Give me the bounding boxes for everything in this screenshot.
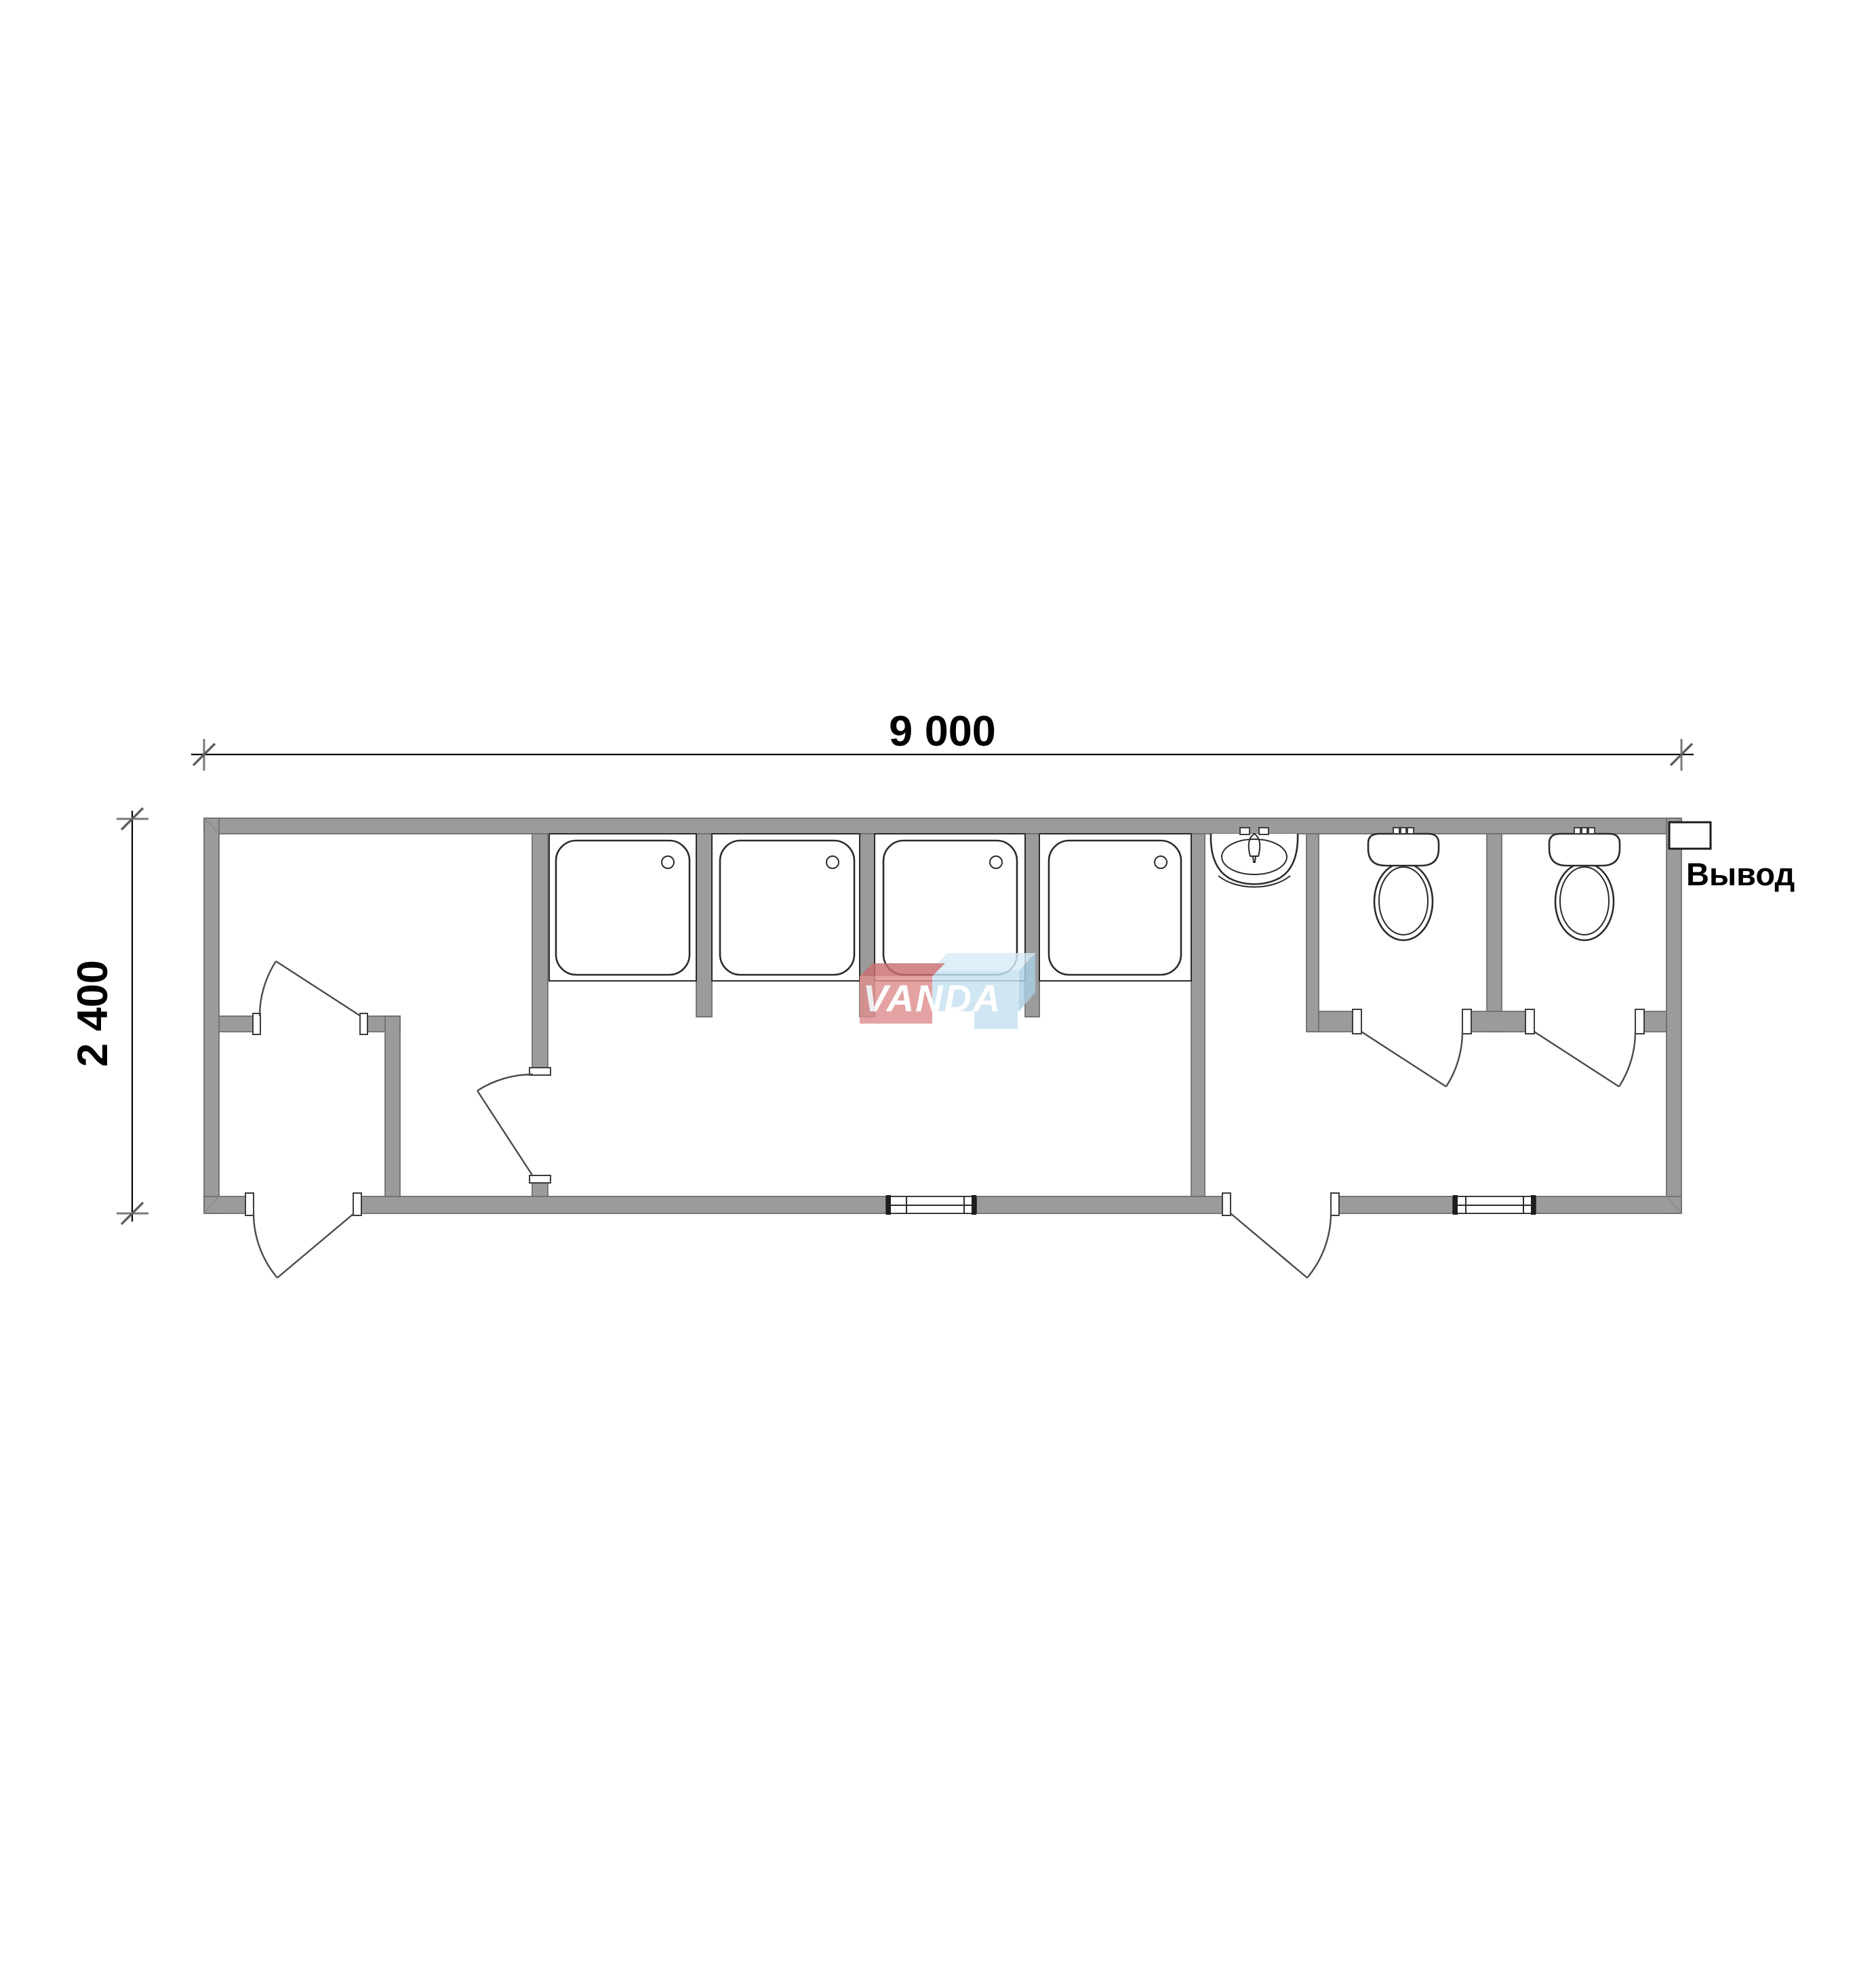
door-jamb <box>253 1013 260 1034</box>
toilet-1 <box>1368 828 1439 940</box>
shower-tray-4 <box>1049 841 1181 975</box>
door-jamb <box>530 1175 551 1183</box>
door-jamb <box>245 1193 254 1215</box>
wall-stall-partition <box>1487 834 1502 1032</box>
wall-shower-divider-upper <box>532 834 548 1068</box>
wall-vestibule-top-left <box>219 1016 253 1032</box>
outlet-box <box>1669 822 1711 849</box>
door-wc-stall-2 <box>1534 1032 1635 1087</box>
washbasin-wall-mount <box>1240 828 1250 834</box>
logo-text: VANDA <box>863 977 1002 1020</box>
wall-stall-front-seg <box>1470 1011 1525 1032</box>
wall-top <box>204 818 1681 834</box>
floor-plan-page: 9 000 2 400 <box>0 0 1876 1976</box>
door-wc-entrance <box>1231 1213 1331 1278</box>
wall-bottom-seg <box>204 1196 246 1213</box>
washbasin-wall-mount <box>1259 828 1269 834</box>
toilet-flush-button <box>1408 828 1414 834</box>
door-jamb <box>1331 1193 1339 1215</box>
logo-red-top-face <box>860 963 945 976</box>
wall-bottom-seg <box>361 1196 886 1213</box>
dimension-width-label: 9 000 <box>889 708 996 755</box>
door-jamb <box>1462 1009 1471 1034</box>
toilet-tank <box>1549 834 1620 866</box>
door-entry-main <box>254 1213 354 1278</box>
logo-blue-top-face <box>931 953 1035 971</box>
toilet-flush-button <box>1574 828 1580 834</box>
wall-bottom-seg <box>1339 1196 1453 1213</box>
floor-plan-drawing: 9 000 2 400 <box>0 0 1876 1976</box>
toilet-flush-button <box>1401 828 1406 834</box>
toilet-flush-button <box>1393 828 1399 834</box>
wall-wc-divider <box>1191 834 1205 1196</box>
wall-stall-front-seg <box>1319 1011 1353 1032</box>
door-jamb <box>1353 1009 1361 1034</box>
door-wc-stall-1 <box>1361 1032 1462 1087</box>
outlet-label: Вывод <box>1686 856 1795 892</box>
toilet-tank <box>1368 834 1439 866</box>
wall-bottom-seg <box>1536 1196 1681 1213</box>
door-jamb <box>1635 1009 1644 1034</box>
door-shower-room <box>477 1074 533 1176</box>
wall-bottom-seg <box>976 1196 1222 1213</box>
window-1 <box>886 1195 976 1215</box>
outlet-callout: Вывод <box>1669 822 1795 892</box>
wall-left <box>204 818 219 1213</box>
wall-sink-stall <box>1306 834 1319 1032</box>
washbasin <box>1211 828 1298 887</box>
dimension-height-label: 2 400 <box>69 960 117 1067</box>
wall-vestibule-right <box>385 1016 400 1196</box>
door-vestibule <box>260 961 361 1016</box>
wall-shower-partition-1 <box>696 834 712 1017</box>
shower-tray-1 <box>556 841 690 975</box>
wall-shower-divider-stub <box>532 1183 548 1196</box>
wall-stall-front-seg <box>1644 1011 1667 1032</box>
door-jambs <box>245 1009 1644 1215</box>
toilet-flush-button <box>1582 828 1587 834</box>
door-jamb <box>1222 1193 1231 1215</box>
door-jamb <box>360 1013 367 1034</box>
toilet-2 <box>1549 828 1620 940</box>
door-jamb <box>1525 1009 1534 1034</box>
wall-right <box>1667 818 1681 1213</box>
window-2 <box>1453 1195 1536 1215</box>
toilet-flush-button <box>1589 828 1595 834</box>
dimension-width: 9 000 <box>191 708 1694 771</box>
shower-tray-2 <box>720 841 854 975</box>
dimension-height: 2 400 <box>69 808 148 1224</box>
watermark-logo: VANDA <box>860 953 1035 1029</box>
door-jamb <box>353 1193 361 1215</box>
